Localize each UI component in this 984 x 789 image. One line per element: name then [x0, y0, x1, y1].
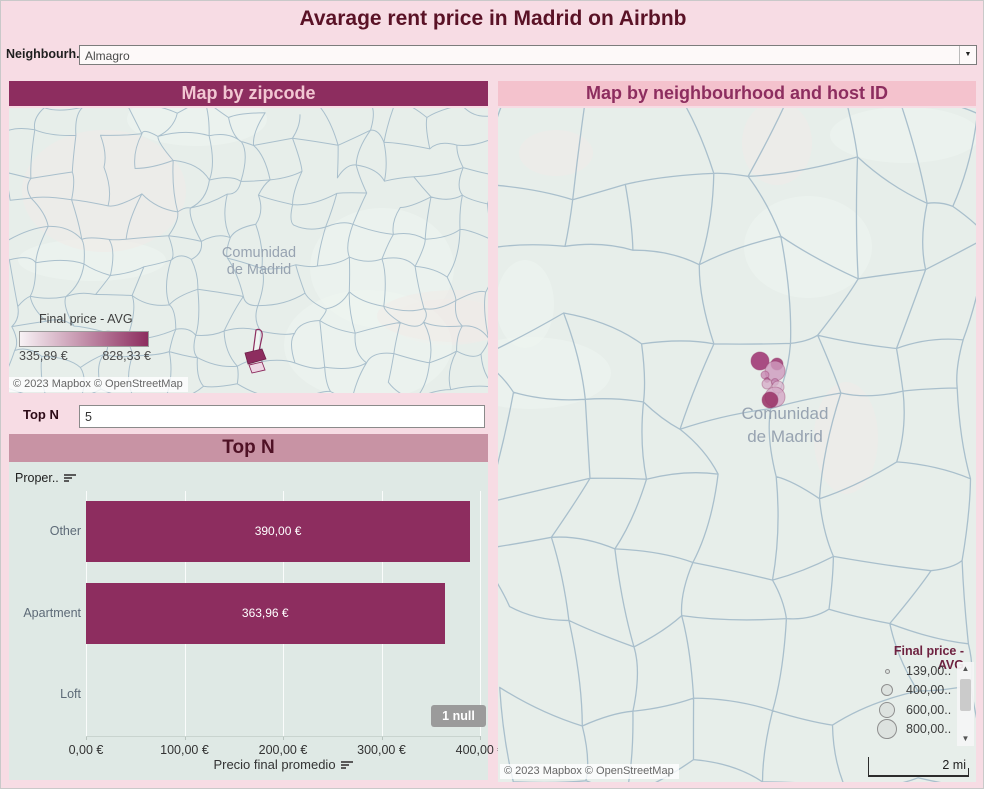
- bar[interactable]: 390,00 €: [86, 501, 470, 562]
- color-legend-gradient: [19, 331, 149, 347]
- x-axis-line: [86, 736, 480, 737]
- property-field-pill[interactable]: Proper..: [15, 471, 76, 485]
- host-bubble[interactable]: [762, 379, 772, 389]
- host-bubble[interactable]: [762, 392, 778, 408]
- sort-descending-icon[interactable]: [64, 474, 76, 483]
- color-legend-min: 335,89 €: [19, 349, 68, 363]
- size-legend-circle: [879, 702, 895, 718]
- map-attribution: © 2023 Mapbox © OpenStreetMap: [500, 764, 679, 779]
- x-axis-title: Precio final promedio: [86, 757, 480, 772]
- legend-scrollbar[interactable]: ▲ ▼: [957, 662, 974, 746]
- size-legend-label: 600,00..: [906, 703, 951, 717]
- category-label: Loft: [9, 687, 81, 701]
- size-legend-circle: [881, 684, 893, 696]
- size-legend-label: 400,00..: [906, 683, 951, 697]
- scale-label: 2 mi: [942, 758, 966, 772]
- top-n-chart-header: Top N: [9, 434, 488, 462]
- top-n-input[interactable]: [79, 405, 485, 428]
- scroll-up-icon[interactable]: ▲: [957, 662, 974, 676]
- zipcode-selected-shape[interactable]: [245, 349, 266, 364]
- scroll-down-icon[interactable]: ▼: [957, 732, 974, 746]
- top-n-label: Top N: [23, 407, 59, 422]
- x-tick-label: 100,00 €: [147, 743, 223, 757]
- neighbourhood-filter-select[interactable]: Almagro ▼: [79, 45, 977, 65]
- size-legend-item[interactable]: 139,00..: [876, 662, 966, 681]
- size-legend-circle: [877, 719, 897, 739]
- dashboard: Avarage rent price in Madrid on Airbnb N…: [0, 0, 984, 789]
- size-legend-label: 800,00..: [906, 722, 951, 736]
- size-legend-item[interactable]: 600,00..: [876, 701, 966, 720]
- size-legend-circle: [885, 669, 890, 674]
- color-legend-max: 828,33 €: [102, 349, 151, 363]
- neighbourhood-map[interactable]: Comunidad de Madrid Final price - AVG 13…: [498, 108, 976, 782]
- category-label: Apartment: [9, 606, 81, 620]
- bar-value-label: 390,00 €: [86, 524, 470, 538]
- zipcode-light-shape[interactable]: [249, 362, 265, 373]
- neighbourhood-filter-label: Neighbourh..: [6, 47, 83, 61]
- color-legend: Final price - AVG 335,89 € 828,33 €: [17, 312, 163, 363]
- x-tick-label: 0,00 €: [48, 743, 124, 757]
- null-indicator-badge[interactable]: 1 null: [431, 705, 486, 727]
- left-map-header: Map by zipcode: [9, 81, 488, 106]
- x-tickmark: [480, 736, 481, 740]
- category-label: Other: [9, 524, 81, 538]
- x-tick-label: 300,00 €: [344, 743, 420, 757]
- page-title: Avarage rent price in Madrid on Airbnb: [1, 7, 984, 31]
- chevron-down-icon[interactable]: ▼: [959, 46, 976, 64]
- bar[interactable]: 363,96 €: [86, 583, 445, 644]
- top-n-bar-chart: Proper.. 0,00 €100,00 €200,00 €300,00 €4…: [9, 462, 488, 780]
- x-gridline: [480, 491, 481, 736]
- map-scale-bar: 2 mi: [868, 757, 969, 777]
- size-legend-label: 139,00..: [906, 664, 951, 678]
- map-attribution: © 2023 Mapbox © OpenStreetMap: [9, 377, 188, 392]
- size-legend-item[interactable]: 400,00..: [876, 681, 966, 700]
- scrollbar-thumb[interactable]: [960, 679, 971, 711]
- x-tick-label: 200,00 €: [245, 743, 321, 757]
- zipcode-map[interactable]: Comunidad de Madrid Final price - AVG 33…: [9, 108, 488, 393]
- color-legend-title: Final price - AVG: [39, 312, 163, 326]
- size-legend-item[interactable]: 800,00..: [876, 720, 966, 739]
- sort-descending-icon[interactable]: [341, 761, 353, 770]
- right-map-header: Map by neighbourhood and host ID: [498, 81, 976, 106]
- bar-value-label: 363,96 €: [86, 606, 445, 620]
- neighbourhood-filter-value: Almagro: [85, 49, 130, 63]
